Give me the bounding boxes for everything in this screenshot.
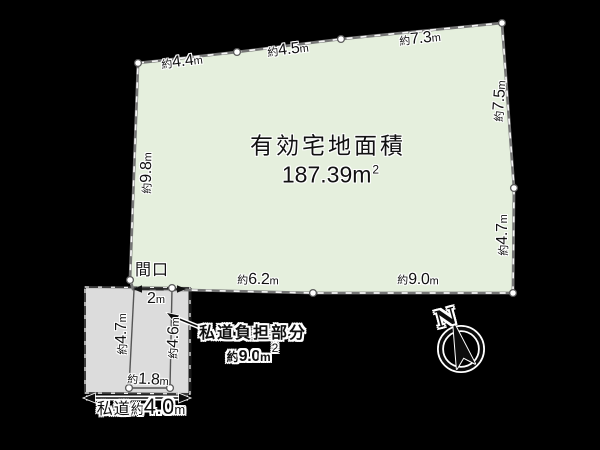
- burden-title: 私道負担部分: [199, 326, 307, 342]
- road-measure-bottom: 約1.8m: [127, 371, 169, 389]
- measure-bottom-2: 約9.0m: [397, 272, 439, 289]
- frontage-value: 2m: [147, 291, 165, 307]
- measure-left-1: 約9.8m: [139, 152, 156, 194]
- measure-bottom-1: 約6.2m: [237, 272, 279, 289]
- frontage-label: 間口: [135, 263, 169, 279]
- road-width-label: 私道約4.0m: [97, 396, 185, 418]
- land-plot-diagram: 有効宅地面積 187.39m2 約4.4m 約4.5m 約7.3m 約7.5m …: [0, 0, 600, 450]
- area-value: 187.39m2: [282, 164, 378, 187]
- measure-right-1: 約7.5m: [491, 80, 510, 123]
- road-measure-left: 約4.7m: [114, 313, 130, 355]
- measure-right-2: 約4.7m: [495, 214, 511, 256]
- road-measure-right: 約4.6m: [165, 317, 183, 359]
- burden-value: 約9.0m2: [227, 349, 278, 365]
- area-title: 有効宅地面積: [250, 135, 406, 158]
